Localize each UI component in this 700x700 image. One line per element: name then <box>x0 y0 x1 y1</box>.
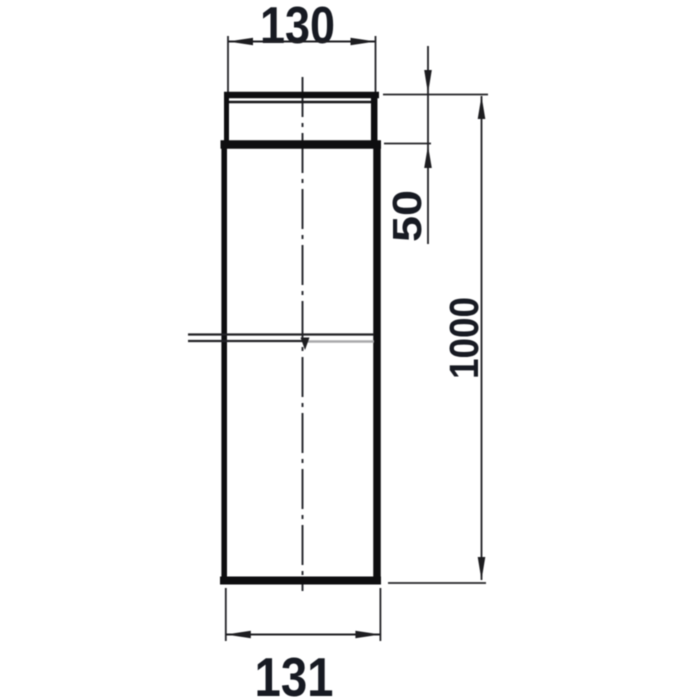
svg-text:131: 131 <box>255 646 334 700</box>
svg-text:130: 130 <box>260 0 335 55</box>
svg-text:1000: 1000 <box>441 297 487 379</box>
svg-text:50: 50 <box>384 190 430 242</box>
